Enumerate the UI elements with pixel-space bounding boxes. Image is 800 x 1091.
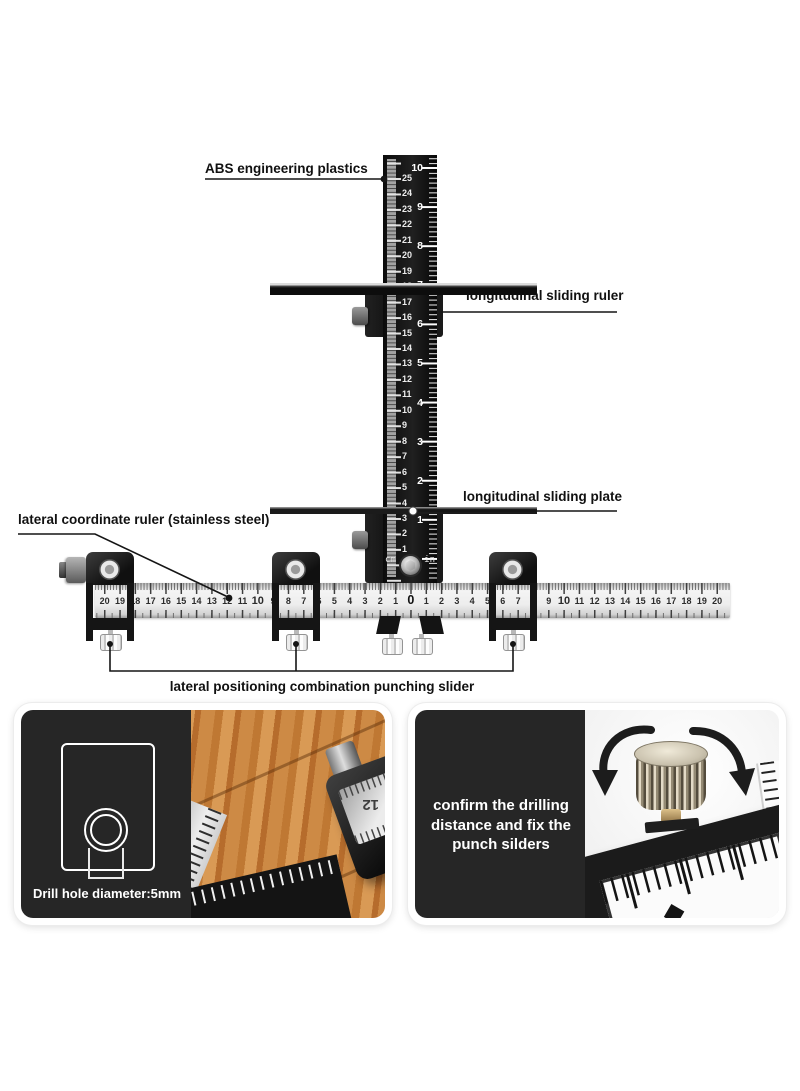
ruler-number: 11 (572, 595, 587, 607)
drill-photo: 161514 12 (21, 710, 385, 918)
ruler-number: 12 (220, 595, 235, 607)
ruler-number: 4 (465, 595, 480, 607)
slider-frame-left (86, 583, 93, 641)
drill-bushing (66, 557, 86, 583)
ruler-number: 16 (158, 595, 173, 607)
lateral-coordinate-ruler: 2019181716151413121110987654321012345678… (95, 583, 730, 618)
slider-frame-right (530, 583, 537, 641)
hole-inner-circle (90, 814, 122, 846)
inch-long-ticks (422, 155, 437, 579)
label-lateral-coordinate-ruler: lateral coordinate ruler (stainless stee… (18, 512, 269, 527)
ruler-number: 0 (403, 595, 418, 607)
ruler-number: 10 (250, 595, 265, 607)
center-foot-left (376, 616, 401, 634)
slider-bottom (272, 618, 320, 630)
screw-icon (285, 559, 306, 580)
knob-caption: confirm the drilling distance and fix th… (421, 796, 581, 855)
panel-drill-hole: 161514 12 (14, 703, 392, 925)
lower-lock-knob (352, 531, 368, 549)
ruler-number: 9 (541, 595, 556, 607)
ruler-number: 10 (556, 595, 571, 607)
ruler-number: 14 (618, 595, 633, 607)
longitudinal-sliding-ruler-wing (270, 283, 537, 295)
screw-icon (99, 559, 120, 580)
slider-top (86, 552, 134, 585)
slider-window: 12 (338, 768, 385, 845)
wood-background: 161514 12 (161, 710, 385, 918)
ruler-number: 1 (388, 595, 403, 607)
ruler-number: 15 (174, 595, 189, 607)
slider-top (272, 552, 320, 585)
ruler-number: 15 (633, 595, 648, 607)
product-diagram-page: ABS engineering plastics longitudinal sl… (0, 0, 800, 1091)
ruler-number: 14 (189, 595, 204, 607)
center-knob-right (412, 638, 433, 655)
bottom-cm-ticks (95, 610, 730, 618)
ruler-number: 18 (679, 595, 694, 607)
slider-bottom (489, 618, 537, 630)
slider-frame-right (127, 583, 134, 641)
slot-line (88, 877, 124, 879)
ruler-number: 20 (710, 595, 725, 607)
punch-slider-left (86, 552, 134, 652)
label-punching-slider: lateral positioning combination punching… (120, 679, 524, 694)
ruler-number: 2 (434, 595, 449, 607)
slider-bottom (86, 618, 134, 630)
vertical-ruler-inch-numbers: 10987654321 (409, 149, 423, 540)
punch-slider-right (489, 552, 537, 652)
ruler-number: 17 (143, 595, 158, 607)
punch-slider-middle (272, 552, 320, 652)
unit-in: in (424, 555, 435, 565)
longitudinal-sliding-plate-wing (270, 507, 537, 514)
unit-cm: cm (385, 555, 396, 565)
knob-photo: 2 confirm the drilling distance and fix (415, 710, 779, 918)
hex-bolt (401, 556, 420, 575)
slider-frame-right (313, 583, 320, 641)
window-number: 12 (362, 796, 379, 813)
ruler-number: 4 (342, 595, 357, 607)
ruler-number: 3 (357, 595, 372, 607)
vertical-ruler: 2524232221201918171615141312111098765432… (383, 155, 437, 583)
ruler-number: 16 (648, 595, 663, 607)
ruler-number: 12 (587, 595, 602, 607)
slider-lock-knob (100, 634, 122, 651)
ruler-number: 13 (204, 595, 219, 607)
upper-lock-knob (352, 307, 368, 325)
center-foot-right (419, 616, 444, 634)
label-longitudinal-sliding-plate: longitudinal sliding plate (463, 489, 622, 504)
panel-fix-knob: 2 confirm the drilling distance and fix (408, 703, 786, 925)
label-abs-plastics: ABS engineering plastics (205, 161, 368, 176)
slider-frame-left (272, 583, 279, 641)
lateral-ruler-numbers: 2019181716151413121110987654321012345678… (97, 595, 725, 607)
ruler-number: 5 (327, 595, 342, 607)
slot-line (88, 848, 90, 877)
ruler-number: 2 (373, 595, 388, 607)
slider-frame-left (489, 583, 496, 641)
ruler-number: 11 (235, 595, 250, 607)
ruler-number: 13 (602, 595, 617, 607)
ruler-number: 3 (449, 595, 464, 607)
window-ticks-bottom (354, 813, 385, 845)
screw-icon (502, 559, 523, 580)
ruler-number: 19 (694, 595, 709, 607)
ruler-number: 1 (419, 595, 434, 607)
slider-lock-knob (286, 634, 308, 651)
drill-caption: Drill hole diameter:5mm (25, 886, 189, 901)
slot-line (122, 848, 124, 877)
slider-lock-knob (503, 634, 525, 651)
knurled-knob-top (634, 741, 708, 767)
center-knob-left (382, 638, 403, 655)
cm-long-ticks (387, 155, 401, 583)
slider-top (489, 552, 537, 585)
ruler-number: 17 (664, 595, 679, 607)
